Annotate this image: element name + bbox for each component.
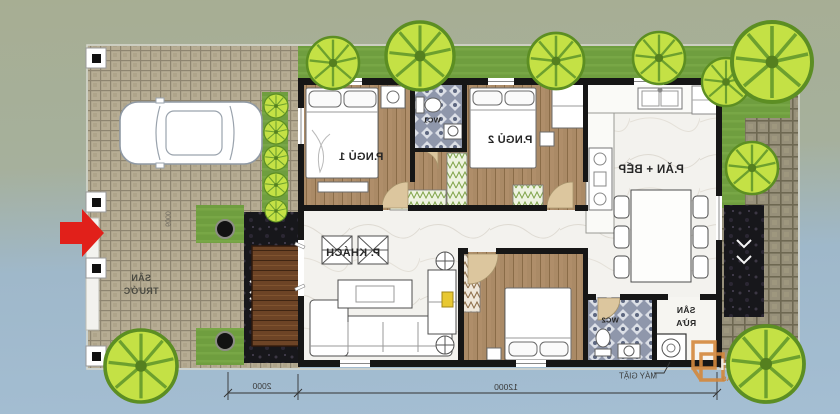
bedroom2-label: P.NGỦ 2 [488, 134, 533, 146]
dim-12000: 12000 [494, 382, 518, 392]
dim-6000: 6000 [164, 211, 171, 227]
wash-yard-label-line1: SÂN [677, 305, 696, 315]
front-yard-label-line1: SÂN [131, 273, 151, 283]
washing-machine [656, 334, 686, 362]
dining-table-set [614, 190, 708, 282]
backyard-path [724, 205, 764, 317]
front-yard-label-line2: TRƯỚC [123, 286, 158, 296]
dim-2000: 2000 [253, 381, 272, 391]
wc1-label: WC1 [423, 116, 441, 125]
dining-kitchen-label: P.ĂN + BẾP [618, 164, 684, 176]
wc2-label: WC2 [601, 316, 619, 325]
bedroom1-label: P.NGỦ 1 [339, 151, 384, 163]
living-label: P. KHÁCH [326, 247, 380, 259]
floor-plan-drawing: HOUSE BẢN MIỄN PHÍ MUA KHỞ Ý [0, 0, 840, 414]
car [120, 98, 262, 168]
washing-machine-label: MÁY GIẶT [619, 372, 657, 381]
floor-plan-canvas: HOUSE BẢN MIỄN PHÍ MUA KHỞ Ý P.NGỦ 1 WC1… [0, 0, 840, 414]
tree-over-watermark [728, 326, 804, 402]
wash-yard-label-line2: RỬA [676, 318, 696, 328]
